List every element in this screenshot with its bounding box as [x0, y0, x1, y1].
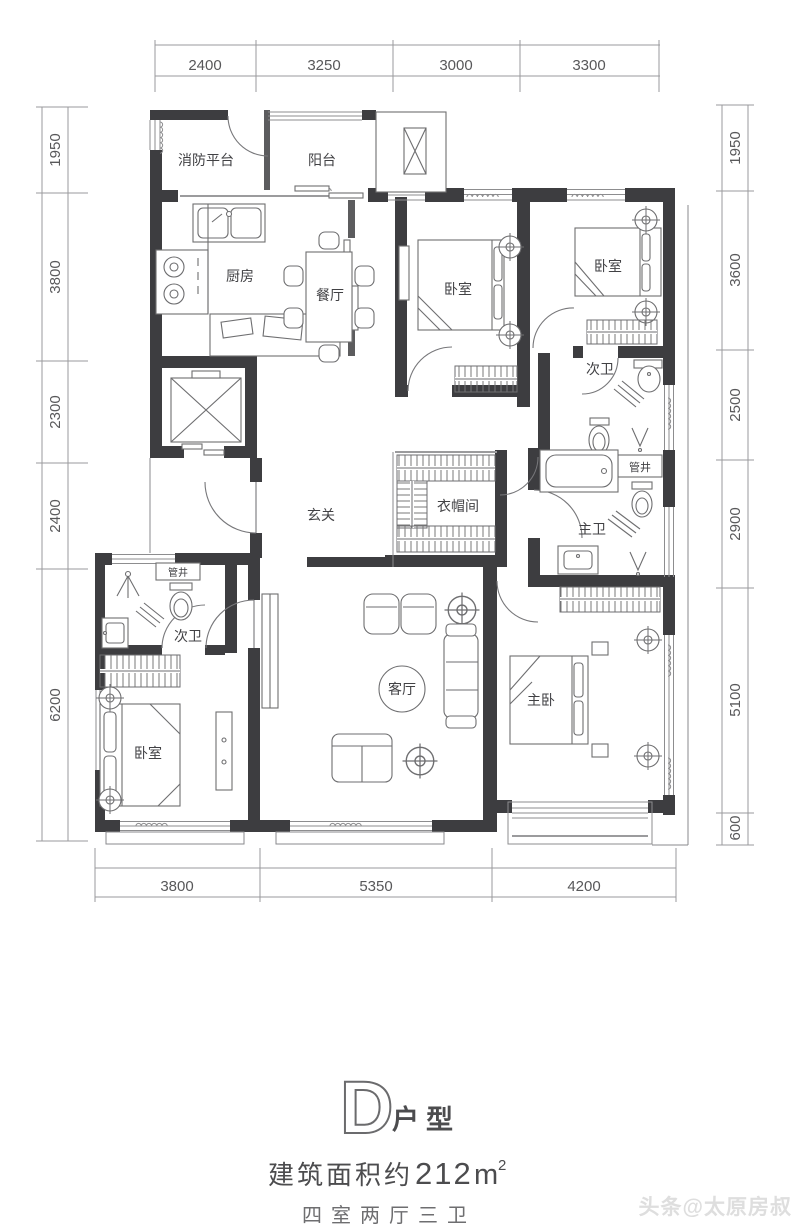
- room-label-bedroom2: 卧室: [594, 258, 622, 274]
- floorplan-page: 2400 3250 3000 3300 3800 5350 4200 1950 …: [0, 0, 800, 1231]
- toilet: [632, 491, 652, 517]
- title-block: D 户型 建筑面积约 212 m 2 四室两厅三卫: [268, 1066, 506, 1227]
- dim-left-4: 2400: [47, 499, 64, 532]
- dimension-band-right: 1950 3600 2500 2900 5100 600: [716, 105, 754, 845]
- bedroom3-furniture: [96, 655, 232, 814]
- window-master-right: [665, 635, 674, 795]
- dim-left-2: 3800: [47, 260, 64, 293]
- ceiling-fan: [445, 593, 480, 628]
- area-value: 212: [415, 1156, 473, 1191]
- room-label-fire-platform: 消防平台: [178, 152, 234, 168]
- floorplan-drawing: 2400 3250 3000 3300 3800 5350 4200 1950 …: [0, 0, 800, 1231]
- bedroom1-furniture: [399, 233, 524, 392]
- bay-window-master: [508, 802, 652, 844]
- plan-letter-suffix: 户型: [392, 1104, 460, 1135]
- area-unit: m: [474, 1159, 498, 1191]
- bedroom2-furniture: [575, 206, 661, 344]
- door-bedroom1: [408, 347, 452, 391]
- dresser: [216, 712, 232, 790]
- pillow: [574, 663, 583, 697]
- dim-top-4: 3300: [572, 57, 605, 74]
- master-bedroom-furniture: [510, 587, 662, 770]
- floor-drain: [630, 552, 646, 570]
- elevator: [171, 371, 241, 442]
- dim-left-3: 2300: [47, 395, 64, 428]
- dim-right-1: 1950: [727, 131, 744, 164]
- room-label-bath-top: 次卫: [586, 361, 614, 377]
- dim-bottom-3: 4200: [567, 878, 600, 895]
- faucet: [227, 212, 232, 217]
- shower: [136, 603, 164, 627]
- dim-right-3: 2500: [727, 388, 744, 421]
- room-label-bedroom1: 卧室: [444, 281, 472, 297]
- dim-right-4: 2900: [727, 507, 744, 540]
- toilet: [170, 592, 192, 620]
- dim-bottom-1: 3800: [160, 878, 193, 895]
- washbasin: [638, 366, 660, 392]
- window-bedroom3-bottom: [120, 822, 230, 831]
- pillow: [104, 712, 116, 752]
- nightstand: [592, 744, 608, 757]
- watermark: 头条@太原房叔: [639, 1195, 792, 1219]
- nightstand: [592, 642, 608, 655]
- dim-left-1: 1950: [47, 133, 64, 166]
- window-bath2-left: [112, 555, 175, 564]
- room-label-pipe-shaft-left: 管井: [168, 566, 188, 579]
- dim-top-3: 3000: [439, 57, 472, 74]
- area-superscript: 2: [498, 1157, 506, 1174]
- floor-drain: [632, 428, 648, 446]
- layout-subtitle: 四室两厅三卫: [302, 1204, 476, 1227]
- toilet-tank: [590, 418, 609, 425]
- room-label-dining: 餐厅: [316, 287, 344, 303]
- dimension-band-top: 2400 3250 3000 3300: [155, 40, 660, 92]
- window-bath-right: [665, 385, 674, 450]
- dimension-band-bottom: 3800 5350 4200: [95, 848, 676, 902]
- door-entry: [205, 482, 256, 533]
- dim-bottom-2: 5350: [359, 878, 392, 895]
- toilet-tank: [632, 482, 652, 489]
- room-label-kitchen: 厨房: [226, 268, 254, 284]
- room-label-bedroom3: 卧室: [134, 745, 162, 761]
- nightstand: [399, 246, 409, 300]
- pillow: [642, 234, 650, 261]
- room-label-entry: 玄关: [307, 507, 335, 523]
- dining-chair: [319, 232, 339, 249]
- room-label-master-bedroom: 主卧: [527, 692, 555, 708]
- area-prefix: 建筑面积约: [268, 1160, 413, 1190]
- kitchen-stove: [156, 250, 208, 314]
- room-label-pipe-shaft-right: 管井: [629, 460, 651, 474]
- dim-right-5: 5100: [727, 683, 744, 716]
- room-label-balcony: 阳台: [308, 152, 336, 168]
- dim-left-5: 6200: [47, 688, 64, 721]
- window-left-top: [150, 120, 160, 150]
- door-master-bath: [534, 490, 582, 538]
- door-fire-platform: [228, 116, 268, 156]
- shower-head: [126, 572, 131, 577]
- window-balcony-top: [268, 112, 362, 120]
- plan-letter: D: [340, 1066, 393, 1149]
- room-label-master-bath: 主卫: [578, 521, 606, 537]
- door-bedroom2: [533, 308, 574, 348]
- shower: [608, 511, 640, 537]
- room-label-cloakroom: 衣帽间: [437, 498, 479, 514]
- window-masterbath-right: [665, 507, 674, 577]
- dim-right-6: 600: [727, 815, 744, 840]
- shaft-top: [376, 112, 446, 192]
- living-room-furniture: [262, 593, 480, 783]
- window-living-bottom: [290, 822, 432, 831]
- toilet-tank: [170, 583, 192, 590]
- room-label-bath-bottom: 次卫: [174, 628, 202, 644]
- room-label-living: 客厅: [388, 681, 416, 697]
- balcony-sliding-door: [295, 186, 329, 191]
- armchair: [401, 594, 436, 634]
- sofa-large: [444, 634, 478, 718]
- elevator-door: [182, 444, 202, 449]
- dim-top-1: 2400: [188, 57, 221, 74]
- door-master-bedroom: [497, 581, 538, 622]
- dim-right-2: 3600: [727, 253, 744, 286]
- dim-top-2: 3250: [307, 57, 340, 74]
- dimension-band-left: 1950 3800 2300 2400 6200: [36, 107, 88, 841]
- armchair: [364, 594, 399, 634]
